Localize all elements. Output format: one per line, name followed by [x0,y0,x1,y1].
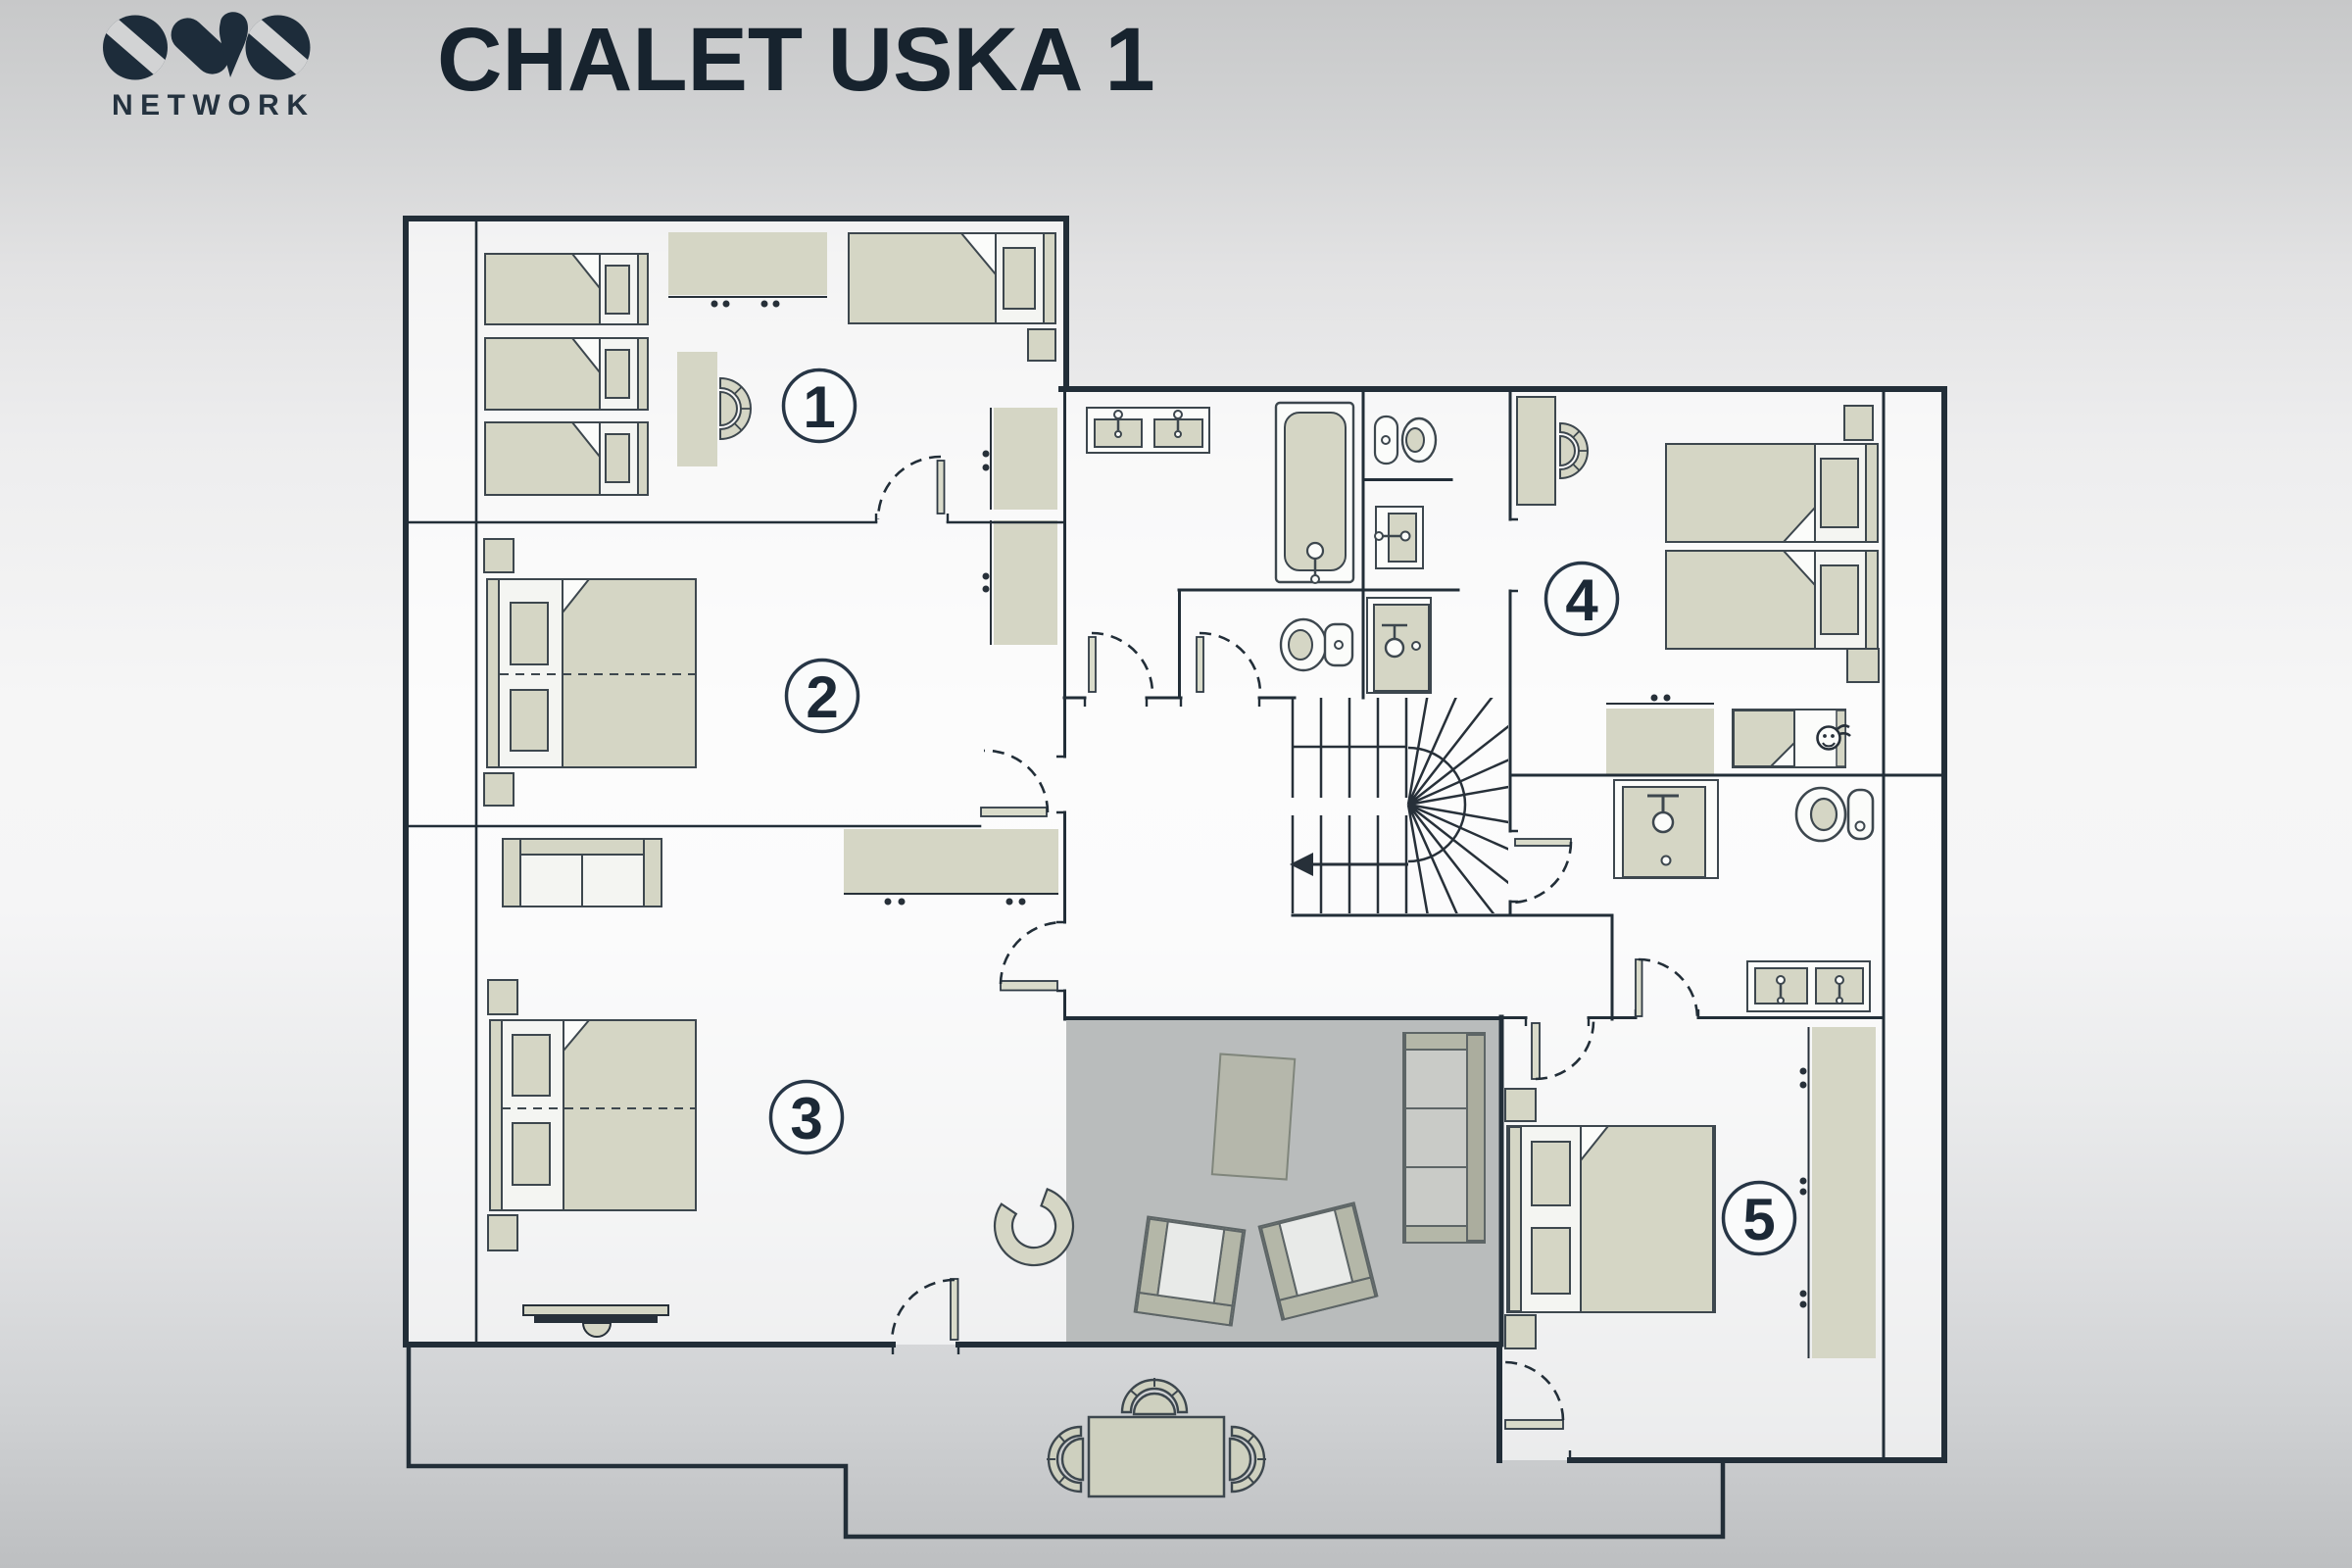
svg-text:CHALET USKA 1: CHALET USKA 1 [437,10,1155,110]
svg-text:2: 2 [806,664,838,730]
svg-text:3: 3 [790,1086,822,1151]
svg-text:5: 5 [1742,1187,1775,1252]
svg-text:1: 1 [803,374,835,440]
svg-text:NETWORK: NETWORK [112,89,315,122]
svg-text:4: 4 [1565,567,1598,633]
